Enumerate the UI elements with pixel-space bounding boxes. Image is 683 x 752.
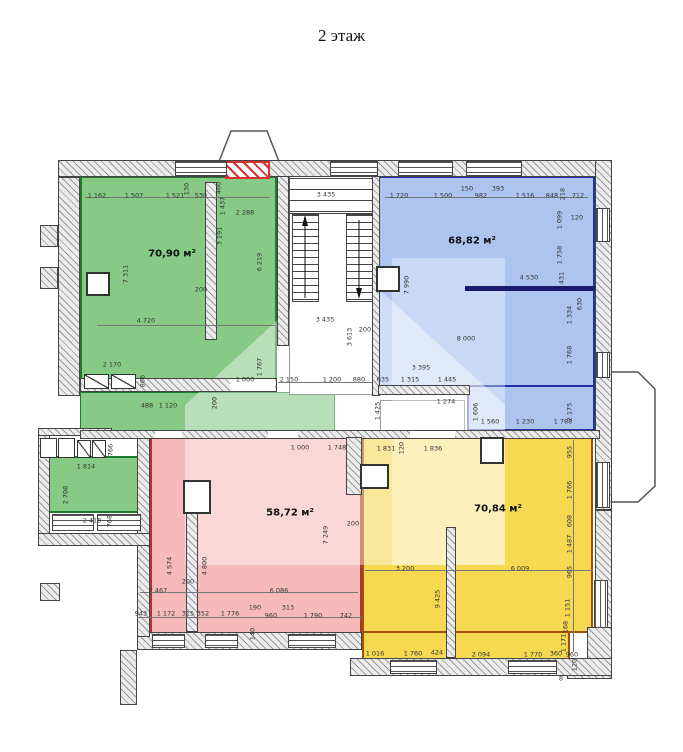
- dimension-label: 150: [461, 186, 473, 193]
- dimension-label: 1 720: [390, 193, 409, 200]
- dimension-label: 200: [359, 327, 371, 334]
- dimension-label: 1 274: [437, 399, 456, 406]
- dimension-label: 1 790: [304, 613, 323, 620]
- dimension-label: 1 334: [567, 306, 574, 325]
- dimension-label: 3 395: [412, 365, 431, 372]
- dimension-label: 1 500: [434, 193, 453, 200]
- dimension-label: 960: [265, 613, 277, 620]
- dimension-label: 880: [353, 377, 365, 384]
- floor-plan-page: 2 этаж: [0, 0, 683, 752]
- dimension-label: 460: [216, 182, 223, 194]
- dimension-label: 960: [566, 652, 578, 659]
- dimension-label: 3 435: [316, 317, 335, 324]
- dimension-label: 2 467: [149, 588, 168, 595]
- dimension-label: 488: [141, 403, 153, 410]
- dimension-label: 1 768: [567, 346, 574, 365]
- dimension-label: 1 521: [166, 193, 185, 200]
- dimension-label: 608: [567, 515, 574, 527]
- dimension-label: 140: [250, 628, 257, 640]
- dimension-label: 200: [347, 521, 359, 528]
- dimension-label: 8: [559, 676, 563, 683]
- dimension-label: 1 172: [157, 611, 176, 618]
- dimension-label: 630: [577, 298, 584, 310]
- dimension-label: 200: [212, 397, 219, 409]
- dimension-label: 1 315: [401, 377, 420, 384]
- dimension-label: 848: [546, 193, 558, 200]
- dimension-label: 1 776: [221, 611, 240, 618]
- dimension-label: 6 009: [511, 566, 530, 573]
- dimension-label: 1 606: [473, 403, 480, 422]
- dimension-label: 1 836: [424, 446, 443, 453]
- dimension-label: 218: [560, 188, 567, 200]
- dimension-label: 120: [399, 442, 406, 454]
- dimension-label: 1 162: [88, 193, 107, 200]
- dimension-label: 1 560: [481, 419, 500, 426]
- dimension-label: 1 099: [557, 211, 564, 230]
- dimension-label: 1 151: [565, 599, 572, 618]
- dimension-label: 1 507: [125, 193, 144, 200]
- dimension-label: 4 800: [202, 557, 209, 576]
- dimension-label: 742: [340, 613, 352, 620]
- dimension-label: 3 435: [317, 192, 336, 199]
- dimension-label: 1 487: [567, 535, 574, 554]
- dimension-label: 4 530: [520, 275, 539, 282]
- dimension-label: 1 770: [524, 652, 543, 659]
- dimension-label: 1 200: [323, 377, 342, 384]
- dimension-label: 1 814: [77, 464, 96, 471]
- dimension-label: 1 766: [567, 481, 574, 500]
- dimension-label: 352: [197, 611, 209, 618]
- dimension-label: 1 760: [404, 651, 423, 658]
- dimension-label: 2 418: [83, 518, 102, 525]
- dimension-label: 200: [182, 579, 194, 586]
- dimension-label: 1 016: [366, 651, 385, 658]
- dimension-label: 393: [492, 186, 504, 193]
- dimension-label: 1 758: [557, 246, 564, 265]
- dimension-label: 190: [249, 605, 261, 612]
- dimension-label: 431: [559, 272, 566, 284]
- dimension-label: 168: [563, 621, 570, 633]
- dimension-label: 2 708: [63, 486, 70, 505]
- dimension-label: 6 086: [270, 588, 289, 595]
- dimension-label: 200: [195, 287, 207, 294]
- dimension-label: 120: [571, 215, 583, 222]
- dimension-label: 766: [108, 444, 115, 456]
- dimension-label: 955: [567, 446, 574, 458]
- dimension-label: 2 288: [236, 210, 255, 217]
- dimension-label: 313: [282, 605, 294, 612]
- dimension-label: 1 767: [257, 358, 264, 377]
- dimension-label: 120: [572, 659, 579, 671]
- dimension-label: 7 249: [323, 526, 330, 545]
- dimension-label: 1 120: [159, 403, 178, 410]
- dimension-label: 6 219: [257, 253, 264, 272]
- dimension-label: 360: [550, 651, 562, 658]
- dimension-label: 943: [135, 611, 147, 618]
- dimension-labels-layer: 1 1621 5071 5215301304601 4372 2883 1916…: [0, 0, 683, 752]
- dimension-label: 1 000: [236, 377, 255, 384]
- dimension-label: 1 425: [375, 402, 382, 421]
- dimension-label: 2 094: [472, 652, 491, 659]
- dimension-label: 7 990: [404, 276, 411, 295]
- dimension-label: 424: [431, 650, 443, 657]
- dimension-label: 635: [377, 377, 389, 384]
- dimension-label: 1 230: [516, 419, 535, 426]
- dimension-label: 712: [572, 193, 584, 200]
- dimension-label: 130: [184, 183, 191, 195]
- dimension-label: 768: [107, 515, 114, 527]
- dimension-label: 1 788: [554, 419, 573, 426]
- dimension-label: 3 200: [396, 566, 415, 573]
- dimension-label: 3 613: [347, 328, 354, 347]
- dimension-label: 530: [195, 193, 207, 200]
- dimension-label: 4 720: [137, 318, 156, 325]
- dimension-label: 965: [567, 566, 574, 578]
- dimension-label: 1 831: [377, 446, 396, 453]
- dimension-label: 3 191: [217, 227, 224, 246]
- dimension-label: 8 000: [457, 336, 476, 343]
- dimension-label: 315: [182, 611, 194, 618]
- dimension-label: 7 311: [123, 265, 130, 284]
- dimension-label: 2 150: [280, 377, 299, 384]
- dimension-label: 1 445: [438, 377, 457, 384]
- dimension-label: 1 437: [220, 197, 227, 216]
- dimension-label: 4 574: [167, 557, 174, 576]
- dimension-label: 2 170: [103, 362, 122, 369]
- dimension-label: 1 000: [291, 445, 310, 452]
- dimension-label: 866: [140, 375, 147, 387]
- dimension-label: 982: [475, 193, 487, 200]
- dimension-label: 1 516: [516, 193, 535, 200]
- dimension-label: 9 425: [435, 590, 442, 609]
- dimension-label: 1 748: [328, 445, 347, 452]
